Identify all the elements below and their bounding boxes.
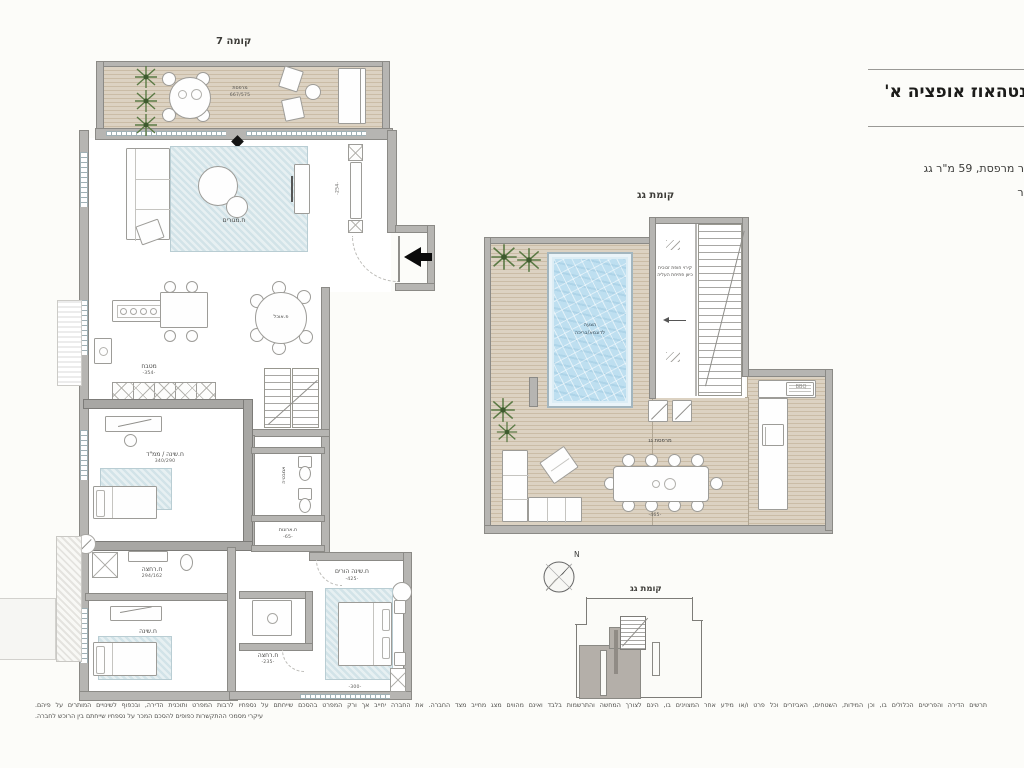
sofa-line — [503, 475, 529, 476]
bar-counter — [758, 398, 788, 510]
plate — [664, 478, 676, 490]
living-label: ח.מגורים — [204, 217, 264, 225]
bar-chair — [164, 330, 176, 342]
sofa-line — [547, 498, 548, 523]
neighbor-structure — [0, 598, 56, 660]
wall-segment — [306, 592, 312, 650]
mat — [672, 400, 692, 422]
pool-label-1: הצעה — [566, 322, 614, 328]
roof-stairs — [698, 224, 742, 396]
wall-segment — [252, 448, 324, 453]
sofa-line — [135, 209, 171, 210]
balcony-sofa-back — [360, 68, 366, 124]
wall-segment — [485, 526, 832, 533]
wall-segment — [383, 62, 389, 131]
bed — [338, 602, 392, 666]
exterior-ledge — [57, 300, 82, 386]
mat-line — [675, 403, 691, 419]
master-dim: -425- — [336, 578, 368, 583]
pillow — [382, 637, 390, 659]
balcony-table — [169, 77, 211, 119]
page-title: פנטהאוז אופציה א' — [866, 82, 1024, 102]
corridor-dim: -254- — [337, 175, 342, 201]
roof-title: קומת גג — [637, 190, 674, 201]
wall-segment — [743, 218, 748, 376]
blanket-line — [373, 603, 374, 665]
wall-segment — [244, 400, 252, 550]
direction-arrow-line — [668, 320, 686, 321]
armchair — [392, 582, 412, 602]
pillow — [96, 490, 105, 517]
stairs-flight — [264, 368, 291, 428]
blanket-line — [112, 487, 113, 518]
exterior-hatch — [56, 536, 82, 662]
kitchen-appliance — [94, 338, 112, 364]
sofa-line — [503, 499, 529, 500]
toilet — [299, 498, 311, 513]
wall-segment — [485, 238, 490, 532]
toilet — [299, 466, 311, 481]
wall-segment — [84, 542, 252, 550]
plant-icon — [133, 88, 159, 114]
pool-label-2: לדוגמא/בריכה — [560, 330, 620, 336]
wall-segment — [228, 548, 235, 699]
sofa-line — [565, 498, 566, 523]
burner — [140, 308, 147, 315]
balcony-label: מרפסת — [220, 86, 260, 92]
dining-label: פ.אוכל — [261, 314, 301, 320]
wall-segment — [240, 592, 312, 598]
fridge-handle — [765, 427, 766, 445]
kitchen-dim: -354- — [134, 372, 164, 377]
hall-cabinet — [350, 162, 362, 219]
floorplan-page: פנטהאוז אופציה א' ר מרפסת, 59 מ"ר גג יר … — [0, 0, 1024, 768]
coffee-table-small — [226, 196, 248, 218]
wall-segment — [388, 131, 396, 232]
plant-icon — [133, 64, 159, 90]
bath3-dim: -235- — [254, 661, 282, 666]
subtitle-line-2: יר — [866, 186, 1024, 199]
balcony-dim: 667/575 — [222, 94, 258, 99]
bath2-dim: 294/162 — [136, 575, 168, 580]
header-rule-bottom — [868, 126, 1024, 127]
drain — [267, 613, 278, 624]
pillow — [382, 609, 390, 631]
wall-segment — [530, 378, 537, 406]
plate — [178, 90, 187, 99]
wall-segment — [252, 516, 324, 521]
wall-segment — [396, 284, 434, 290]
desk — [105, 416, 162, 432]
wall-segment — [650, 218, 655, 398]
tv-unit — [294, 164, 310, 214]
wall-segment — [80, 692, 237, 700]
keyplan-title: קומת גג — [630, 584, 662, 594]
mat-line — [651, 403, 667, 419]
terrace-label: מרפסת גג — [630, 438, 690, 445]
burner — [120, 308, 127, 315]
wall-segment — [252, 546, 324, 551]
mat — [648, 400, 668, 422]
side-table — [305, 84, 321, 100]
plant-icon — [495, 420, 519, 444]
patio-chair — [710, 477, 723, 490]
lounge-line — [551, 458, 570, 471]
utility-arrow — [81, 539, 92, 550]
wall-segment — [826, 370, 832, 530]
burner — [130, 308, 137, 315]
sink-counter — [128, 551, 168, 562]
patio-table — [613, 466, 709, 502]
closet-box — [348, 144, 363, 161]
toilet — [180, 554, 193, 571]
wall-segment — [248, 430, 329, 436]
subtitle-line-1: ר מרפסת, 59 מ"ר גג — [866, 162, 1024, 175]
keyplan-notch — [575, 597, 587, 625]
keyplan-notch — [692, 597, 703, 621]
outdoor-fridge — [762, 424, 784, 446]
plant-icon — [515, 246, 543, 274]
disclaimer-line-2: עיקרי מסמכי ההתקשרות כפופים להסכם המכר ע… — [35, 712, 987, 721]
wall-segment — [84, 400, 252, 408]
wall-segment — [310, 553, 411, 560]
window — [246, 131, 366, 136]
tower-divider — [695, 224, 697, 396]
shower-stall — [252, 600, 292, 636]
window — [300, 694, 390, 699]
pillow — [96, 646, 105, 674]
window — [80, 430, 88, 480]
kitchen-label: מטבח — [126, 363, 172, 371]
closet-dim: -65- — [276, 536, 300, 541]
keyplan-unit-shaded — [580, 646, 640, 698]
desk-chair — [124, 434, 137, 447]
wall-segment — [650, 218, 748, 223]
roof-dim: -465- — [640, 514, 670, 519]
stair-note: קירוי חופת זכוכית כיוון פתיחת העליה — [657, 266, 693, 280]
direction-arrow-icon — [663, 317, 669, 323]
master-label: ח.שינה הורים — [320, 568, 384, 576]
wall-segment — [746, 370, 832, 376]
plate — [191, 89, 202, 100]
closet-box — [348, 220, 363, 233]
window — [106, 131, 226, 136]
bath-label: אמבטיה — [281, 453, 287, 497]
bed — [93, 642, 157, 676]
wall-segment — [322, 288, 329, 553]
plant-icon — [133, 112, 159, 138]
burner — [150, 308, 157, 315]
master-bottom-dim: -300- — [340, 686, 370, 691]
keyplan-slit — [652, 642, 660, 676]
closet-label: ח.ארונות — [266, 528, 310, 534]
tv-screen — [291, 176, 293, 202]
sofa-line — [135, 179, 171, 180]
header-rule-top — [868, 69, 1024, 70]
north-label: N — [574, 550, 580, 559]
lounge-chair — [281, 96, 305, 122]
keyplan-core — [614, 630, 618, 674]
entry-door-leaf — [398, 236, 400, 282]
entrance-arrow-icon — [404, 247, 421, 267]
plate — [652, 480, 660, 488]
entrance-arrow-stem — [421, 253, 432, 261]
mamad-label: ח.שינה / ממ"ד — [130, 451, 200, 459]
mamad-dim: 340/290 — [148, 460, 182, 465]
bath2-label: ח.רחצה — [124, 566, 180, 574]
nightstand — [394, 600, 406, 614]
wall-segment — [86, 594, 232, 600]
bedroom2-label: ח.שינה — [128, 628, 168, 636]
keyplan-slit — [600, 650, 607, 696]
nightstand — [394, 652, 406, 666]
bar-chair — [186, 330, 198, 342]
sink — [99, 347, 108, 356]
glass-mark — [666, 352, 680, 362]
wall-segment — [97, 62, 103, 131]
bbq-label: BBQ — [789, 384, 813, 394]
shower — [92, 552, 118, 578]
bed — [93, 486, 157, 519]
north-compass-icon — [536, 554, 582, 600]
glass-mark — [666, 240, 680, 250]
outdoor-sofa — [528, 497, 582, 522]
closet-box — [390, 668, 406, 692]
balcony-sofa — [338, 68, 362, 124]
disclaimer-line-1: תרשים הדירה והפריטים הכלולים בו, וכן המי… — [35, 701, 987, 710]
bar-table — [160, 292, 208, 328]
window — [80, 152, 88, 207]
blanket-line — [112, 643, 113, 675]
floor7-title: קומה 7 — [216, 36, 251, 47]
outdoor-sofa — [502, 450, 528, 522]
